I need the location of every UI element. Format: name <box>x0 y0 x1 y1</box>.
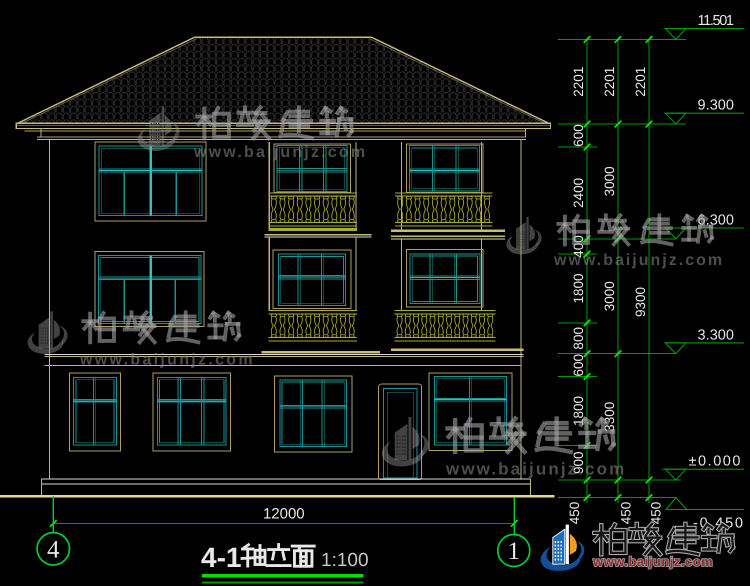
svg-text:www.baijunjz.com: www.baijunjz.com <box>592 554 713 569</box>
svg-text:600: 600 <box>571 354 586 377</box>
svg-text:1:100: 1:100 <box>321 550 369 571</box>
svg-text:3000: 3000 <box>602 281 617 311</box>
svg-text:2201: 2201 <box>633 67 648 97</box>
svg-text:2201: 2201 <box>571 67 586 97</box>
svg-text:2201: 2201 <box>602 67 617 97</box>
svg-text:4: 4 <box>47 537 60 564</box>
svg-text:3.300: 3.300 <box>698 327 735 343</box>
svg-text:9300: 9300 <box>633 287 648 317</box>
svg-text:450: 450 <box>619 502 634 525</box>
svg-text:450: 450 <box>567 502 582 525</box>
svg-text:±0.000: ±0.000 <box>689 454 741 470</box>
svg-text:3000: 3000 <box>602 166 617 196</box>
svg-text:12000: 12000 <box>263 506 305 523</box>
svg-text:9.300: 9.300 <box>698 98 735 114</box>
svg-text:1: 1 <box>508 538 521 565</box>
svg-text:2400: 2400 <box>571 178 586 208</box>
svg-text:www.baijunjz.com: www.baijunjz.com <box>79 352 255 369</box>
svg-text:450: 450 <box>649 502 664 525</box>
svg-text:4-1: 4-1 <box>201 542 241 573</box>
svg-text:www.baijunjz.com: www.baijunjz.com <box>553 252 724 269</box>
svg-text:www.baijunjz.com: www.baijunjz.com <box>445 460 626 479</box>
svg-text:800: 800 <box>571 327 586 350</box>
svg-text:11.501: 11.501 <box>698 13 735 29</box>
svg-text:600: 600 <box>571 124 586 147</box>
svg-text:1800: 1800 <box>571 273 586 303</box>
svg-text:www.baijunjz.com: www.baijunjz.com <box>193 144 367 161</box>
